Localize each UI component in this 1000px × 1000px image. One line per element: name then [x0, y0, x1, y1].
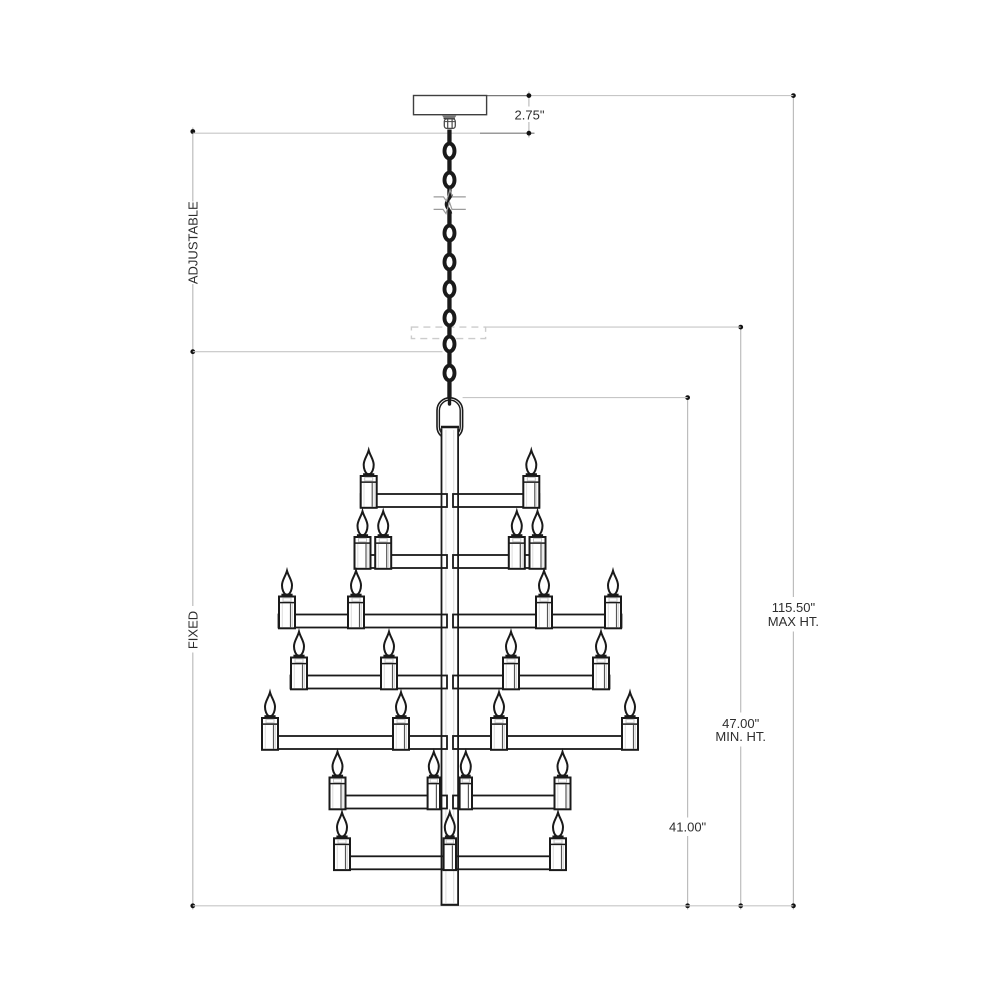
svg-text:2.75": 2.75" — [515, 108, 545, 123]
svg-text:41.00": 41.00" — [669, 820, 707, 835]
svg-text:MIN. HT.: MIN. HT. — [715, 729, 766, 744]
svg-text:115.50": 115.50" — [772, 600, 816, 615]
svg-text:MAX HT.: MAX HT. — [768, 614, 819, 629]
svg-text:ADJUSTABLE: ADJUSTABLE — [185, 201, 200, 284]
svg-text:FIXED: FIXED — [185, 611, 200, 649]
